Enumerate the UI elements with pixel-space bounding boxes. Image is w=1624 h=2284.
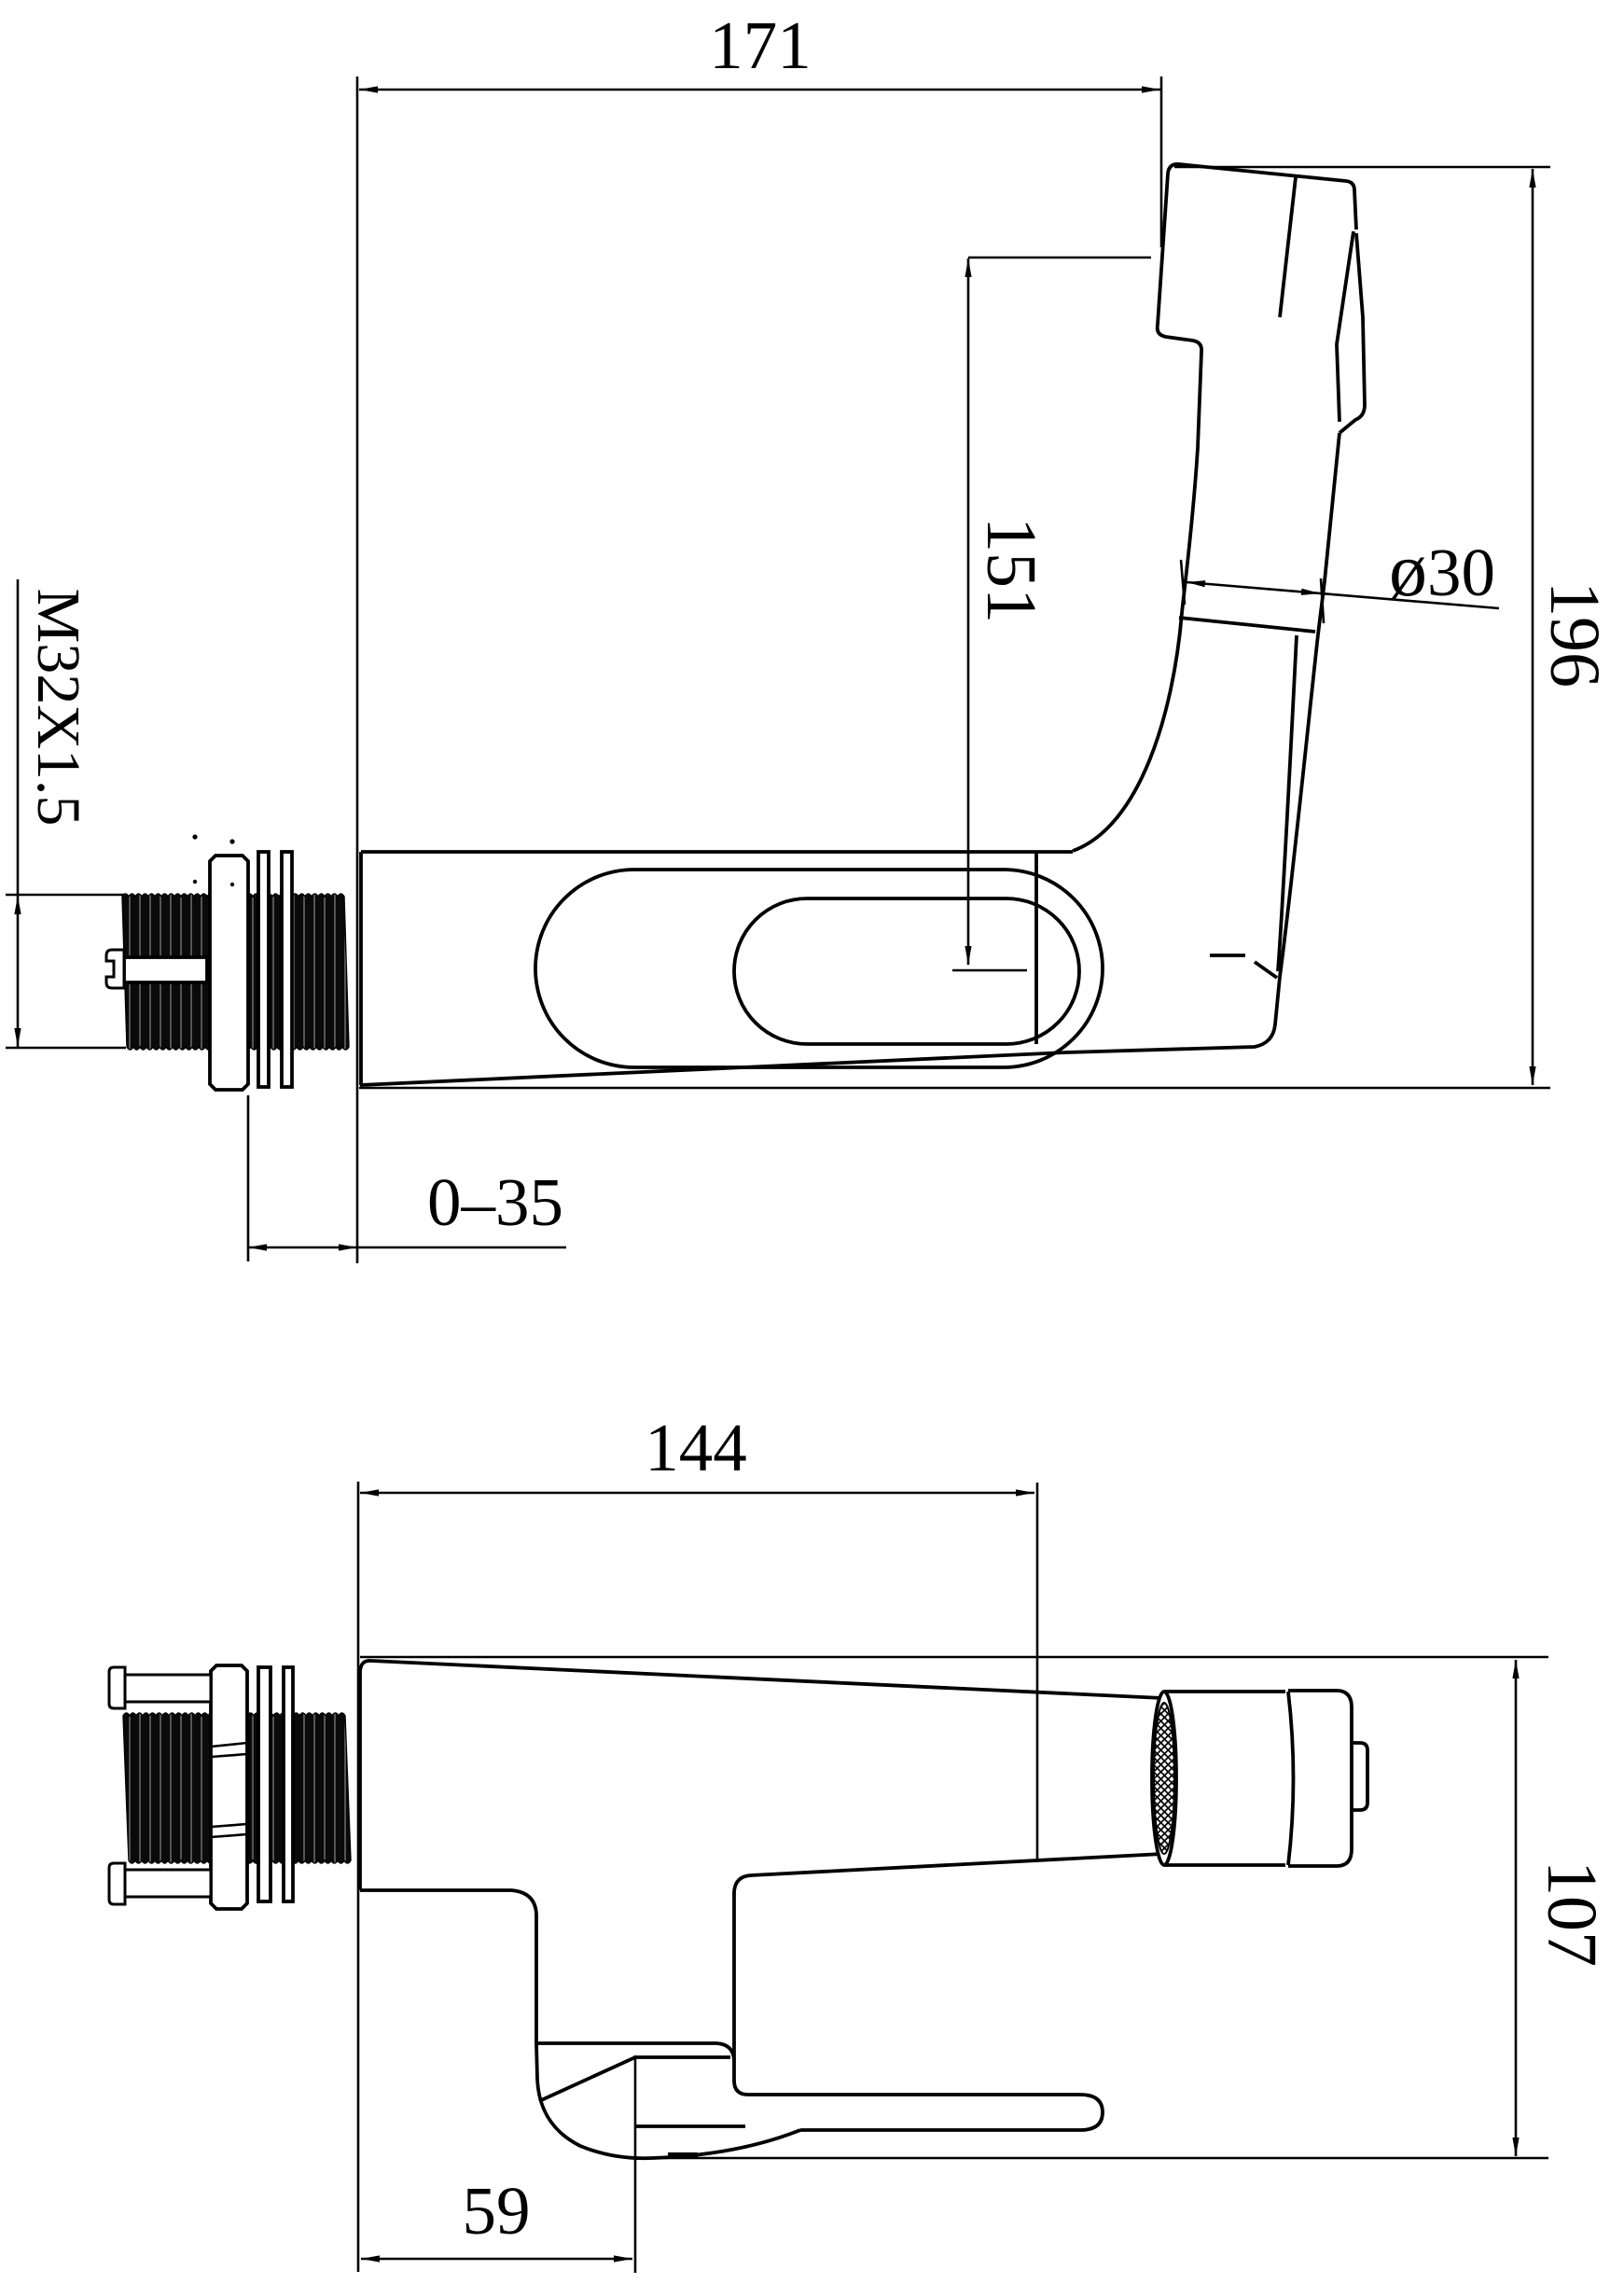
svg-text:196: 196 [1535, 581, 1614, 688]
svg-text:59: 59 [463, 2173, 531, 2249]
svg-text:107: 107 [1533, 1860, 1611, 1967]
svg-text:ø30: ø30 [1389, 527, 1495, 612]
svg-text:144: 144 [645, 1410, 747, 1485]
svg-text:0–35: 0–35 [427, 1164, 563, 1240]
svg-text:171: 171 [709, 7, 812, 83]
svg-text:151: 151 [972, 517, 1050, 623]
svg-text:M32X1.5: M32X1.5 [24, 589, 92, 827]
